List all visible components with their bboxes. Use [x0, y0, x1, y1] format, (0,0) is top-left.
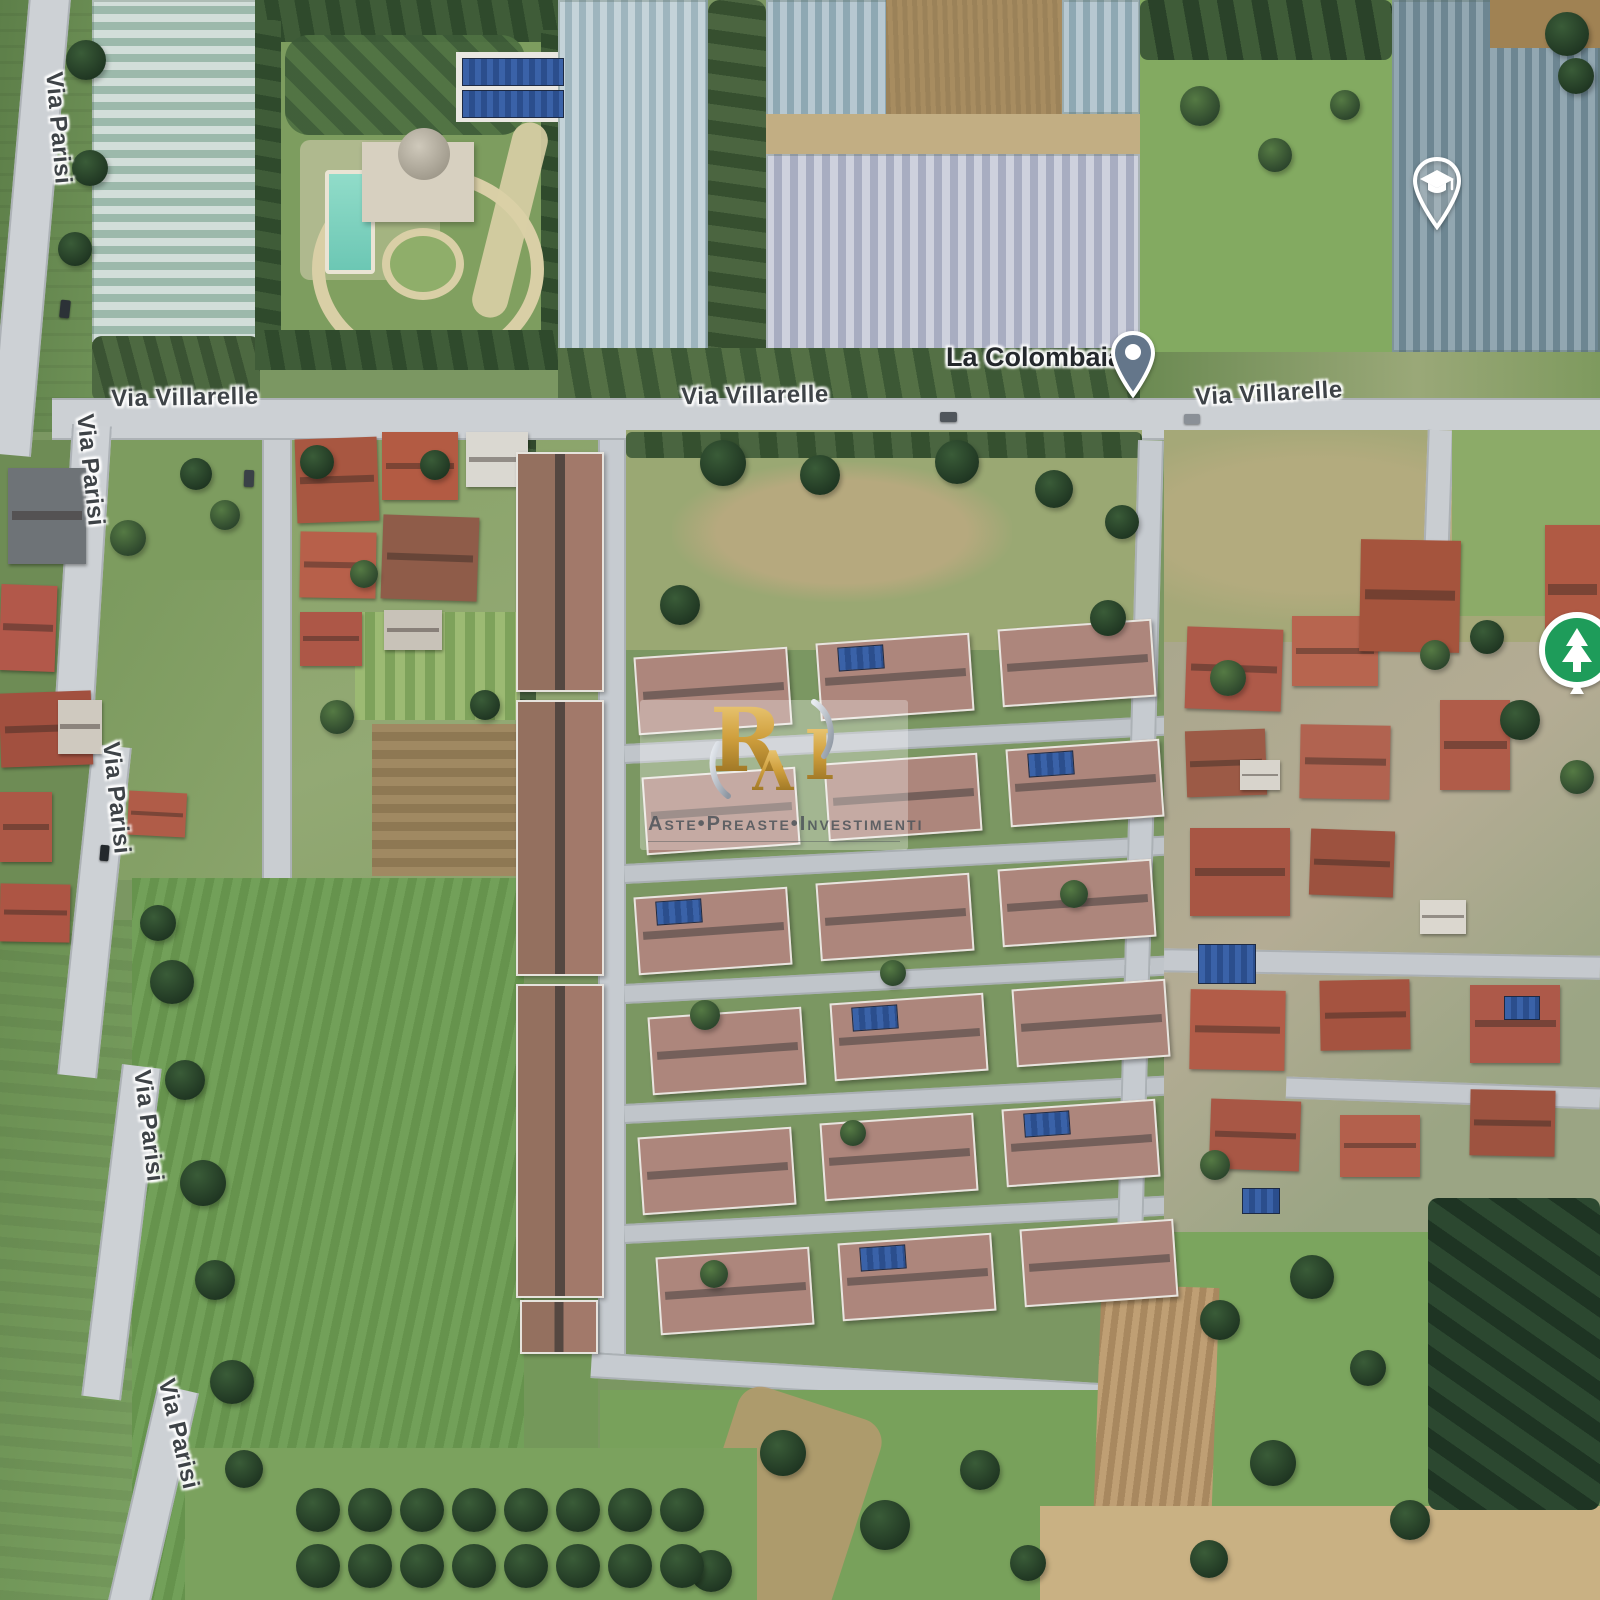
tree [320, 700, 354, 734]
tree [700, 1260, 728, 1288]
dirt-field [886, 0, 1062, 114]
road-label-via-villarelle-2: Via Villarelle [680, 381, 830, 412]
tree [180, 1160, 226, 1206]
tree [180, 458, 212, 490]
house [0, 584, 57, 672]
solar-panel [859, 1244, 907, 1271]
house [1469, 1089, 1555, 1156]
school-pin[interactable] [1410, 156, 1464, 230]
place-pin-icon [1110, 330, 1156, 398]
orchard-tree [296, 1488, 340, 1532]
tree [1390, 1500, 1430, 1540]
tree [1500, 700, 1540, 740]
house [0, 792, 52, 862]
house [1440, 700, 1510, 790]
house [1019, 1219, 1178, 1308]
tree [960, 1450, 1000, 1490]
tree [72, 150, 108, 186]
tree [700, 440, 746, 486]
tree [140, 905, 176, 941]
house [1240, 760, 1280, 790]
orchard-tree [504, 1544, 548, 1588]
watermark-label: Aste•Preaste•Investimenti [648, 813, 900, 842]
tree [210, 1360, 254, 1404]
orchard-tree [556, 1544, 600, 1588]
orchard-tree [452, 1544, 496, 1588]
tree [110, 520, 146, 556]
solar-panel [837, 644, 885, 671]
house [1319, 979, 1410, 1051]
orchard-tree [660, 1488, 704, 1532]
side-street [262, 440, 292, 885]
tree [470, 690, 500, 720]
tree [210, 500, 240, 530]
villa-garden-ring-inner [382, 228, 464, 300]
road-label-via-villarelle-1: Via Villarelle [110, 383, 260, 414]
house [1001, 1099, 1160, 1188]
tree [1200, 1300, 1240, 1340]
house [647, 1007, 806, 1096]
tree [935, 440, 979, 484]
house [633, 887, 792, 976]
tree [1545, 12, 1589, 56]
dirt-path [766, 114, 1140, 154]
la-colombaia-pin[interactable] [1110, 330, 1156, 398]
villa-tree-row [255, 330, 567, 370]
house [637, 1127, 796, 1216]
villa-tree-row [255, 20, 281, 368]
orchard-tree [660, 1544, 704, 1588]
solar-panel [1242, 1188, 1280, 1214]
rowhouse [516, 984, 604, 1298]
rowhouse [516, 700, 604, 976]
solar-panel [462, 58, 564, 86]
solar-panel [655, 898, 703, 925]
tree [1210, 660, 1246, 696]
house [1190, 828, 1290, 916]
tree-band [1428, 1198, 1600, 1510]
solar-panel [1027, 750, 1075, 777]
tree [660, 585, 700, 625]
tree [1330, 90, 1360, 120]
tree [760, 1430, 806, 1476]
tree [165, 1060, 205, 1100]
school-icon [1410, 156, 1464, 230]
orchard-tree [400, 1544, 444, 1588]
tree [1010, 1545, 1046, 1581]
tree [1470, 620, 1504, 654]
house [829, 993, 988, 1082]
solar-panel [851, 1004, 899, 1031]
tree [1190, 1540, 1228, 1578]
watermark-swoosh-icon [698, 694, 848, 804]
orchard-tree [608, 1544, 652, 1588]
tree [880, 960, 906, 986]
tree [225, 1450, 263, 1488]
dirt-field [1040, 1506, 1600, 1600]
tree [66, 40, 106, 80]
tree [1180, 86, 1220, 126]
agency-watermark: R Λ I Aste•Preaste•Investimenti [640, 700, 908, 850]
tree [690, 1000, 720, 1030]
rowhouse [516, 452, 604, 692]
house [1309, 829, 1395, 898]
house [8, 468, 86, 564]
tree [1560, 760, 1594, 794]
greenhouse-block [558, 0, 708, 350]
house [300, 612, 362, 666]
orchard-tree [504, 1488, 548, 1532]
greenhouse-block [766, 0, 888, 116]
house [997, 619, 1156, 708]
orchard-tree [400, 1488, 444, 1532]
car [1184, 414, 1200, 424]
orchard-tree [348, 1544, 392, 1588]
tree [1090, 600, 1126, 636]
greenhouse-block [1062, 0, 1140, 114]
tree [1250, 1440, 1296, 1486]
tree [150, 960, 194, 1004]
tree [1105, 505, 1139, 539]
tree-row [1140, 0, 1392, 60]
rowhouse [520, 1300, 598, 1354]
solar-panel [462, 90, 564, 118]
tree [1035, 470, 1073, 508]
tree [195, 1260, 235, 1300]
car [940, 412, 957, 422]
orchard-tree [452, 1488, 496, 1532]
tree [1258, 138, 1292, 172]
house [815, 873, 974, 962]
house [1340, 1115, 1420, 1177]
place-label-la-colombaia[interactable]: La Colombaia [946, 342, 1106, 373]
tree [350, 560, 378, 588]
tree [1200, 1150, 1230, 1180]
solar-panel [1198, 944, 1256, 984]
tree [1060, 880, 1088, 908]
house [655, 1247, 814, 1336]
house [837, 1233, 996, 1322]
tree [800, 455, 840, 495]
orchard-tree [296, 1544, 340, 1588]
house [1420, 900, 1466, 934]
park-tree-icon [1534, 608, 1600, 702]
house [381, 514, 480, 601]
hedge-column [708, 0, 766, 362]
tree [1290, 1255, 1334, 1299]
solar-panel [1504, 996, 1540, 1020]
tree [300, 445, 334, 479]
greenhouse-block [766, 154, 1140, 356]
satellite-map[interactable]: Via Parisi Via Parisi Via Parisi Via Par… [0, 0, 1600, 1600]
orchard-tree [348, 1488, 392, 1532]
tree [860, 1500, 910, 1550]
solar-panel [1023, 1110, 1071, 1137]
orchard-tree [608, 1488, 652, 1532]
house [0, 883, 71, 942]
park-pin[interactable] [1534, 608, 1600, 702]
watermark-logo: R Λ I [702, 700, 847, 805]
tree [58, 232, 92, 266]
house [1359, 539, 1461, 653]
house [384, 610, 442, 650]
tree [840, 1120, 866, 1146]
car [59, 300, 71, 319]
villa-dome [398, 128, 450, 180]
tree [1558, 58, 1594, 94]
tree [1350, 1350, 1386, 1386]
garden-dirt [372, 724, 518, 876]
house [1189, 989, 1285, 1071]
car [244, 470, 255, 487]
tree [420, 450, 450, 480]
greenhouse-block [92, 0, 260, 342]
tree [1420, 640, 1450, 670]
house [1011, 979, 1170, 1068]
house [127, 791, 187, 838]
house [1005, 739, 1164, 828]
house [1299, 724, 1390, 800]
orchard-tree [556, 1488, 600, 1532]
